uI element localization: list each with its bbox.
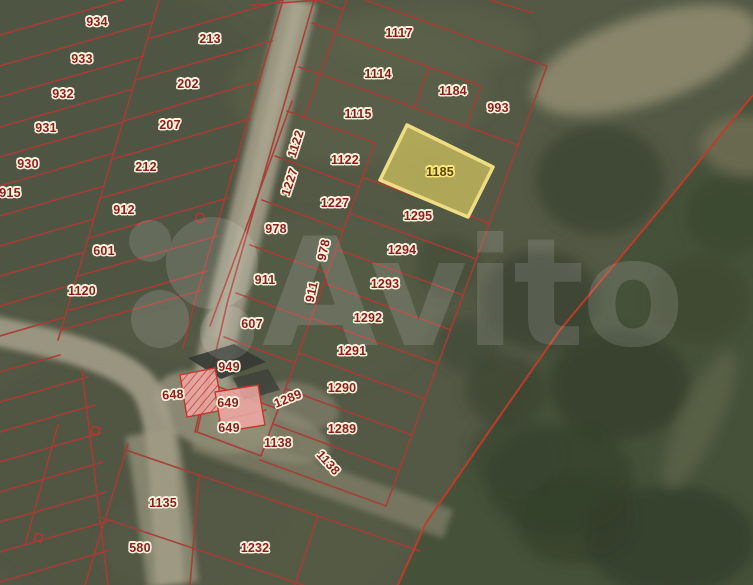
avito-watermark: Avito (129, 207, 682, 381)
watermark-logo-circle (129, 220, 171, 262)
watermark-logo-circle (166, 217, 258, 309)
watermark-text: Avito (262, 207, 682, 381)
building-outline (215, 385, 265, 432)
watermark-logo-circle (131, 290, 189, 348)
cadastral-map-viewport[interactable]: Avito 9349339329319309152132022072129126… (0, 0, 753, 585)
cadastral-map-canvas[interactable]: Avito (0, 0, 753, 585)
watermark-logo-circle (200, 306, 254, 360)
